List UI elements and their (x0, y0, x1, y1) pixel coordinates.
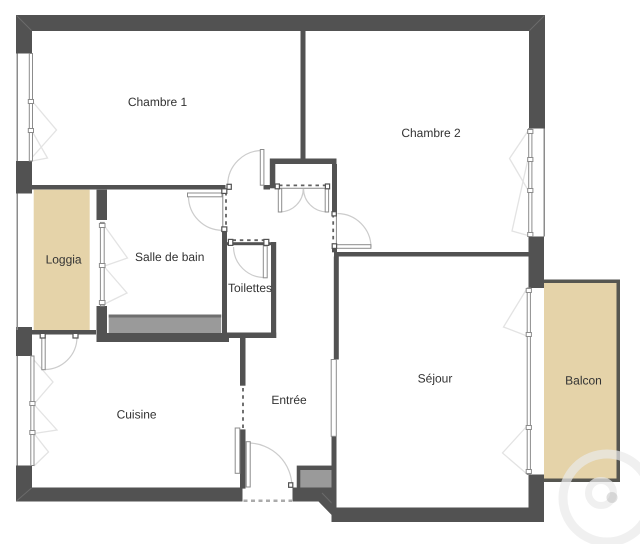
svg-text:Cuisine: Cuisine (117, 408, 157, 422)
svg-text:Entrée: Entrée (271, 393, 307, 407)
svg-text:Chambre 1: Chambre 1 (128, 95, 188, 109)
svg-text:Balcon: Balcon (565, 374, 602, 388)
svg-text:Toilettes: Toilettes (228, 281, 272, 295)
svg-text:Séjour: Séjour (418, 372, 453, 386)
svg-text:Chambre 2: Chambre 2 (401, 126, 461, 140)
svg-text:Salle de bain: Salle de bain (135, 250, 204, 264)
svg-text:Loggia: Loggia (46, 253, 82, 267)
